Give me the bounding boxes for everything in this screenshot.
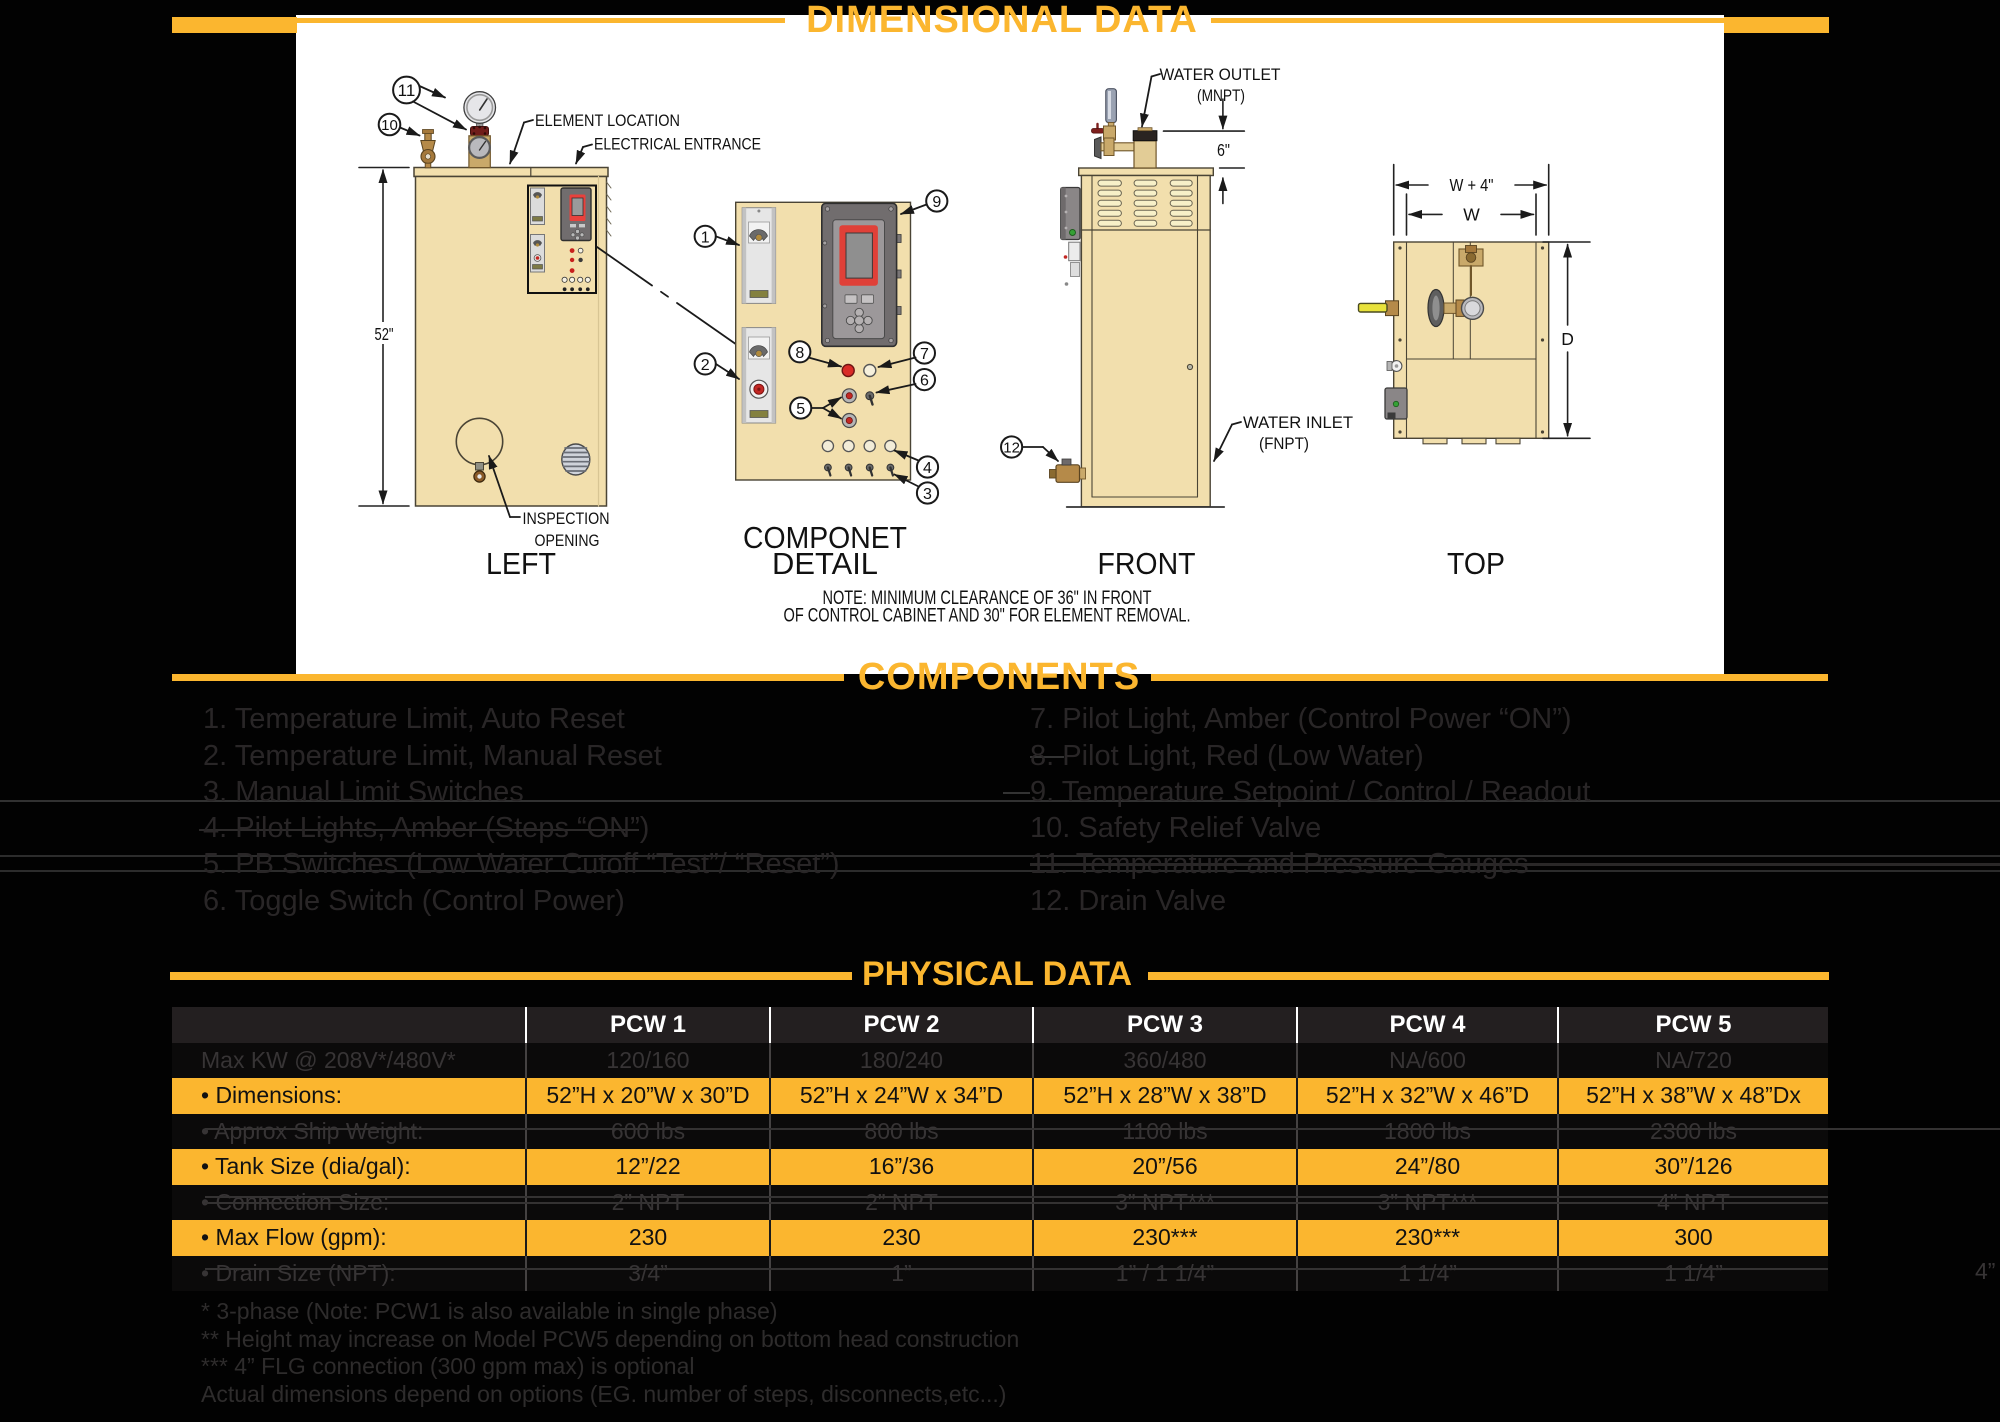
svg-text:1: 1 <box>701 229 710 246</box>
svg-text:(FNPT): (FNPT) <box>1259 435 1309 453</box>
svg-text:5: 5 <box>796 401 805 418</box>
svg-text:ELEMENT LOCATION: ELEMENT LOCATION <box>535 112 680 130</box>
svg-text:6": 6" <box>1217 140 1230 160</box>
svg-text:3: 3 <box>923 486 932 503</box>
svg-text:TOP: TOP <box>1447 546 1505 581</box>
svg-text:ELECTRICAL ENTRANCE: ELECTRICAL ENTRANCE <box>594 136 761 154</box>
svg-text:8: 8 <box>795 345 804 362</box>
svg-text:W + 4": W + 4" <box>1450 175 1494 195</box>
svg-text:52": 52" <box>375 324 394 344</box>
svg-text:DETAIL: DETAIL <box>772 546 878 581</box>
svg-text:7: 7 <box>920 346 929 363</box>
svg-text:W: W <box>1463 205 1480 225</box>
svg-text:LEFT: LEFT <box>486 546 556 581</box>
svg-text:11: 11 <box>398 81 416 100</box>
svg-text:6: 6 <box>920 373 929 390</box>
svg-text:OF CONTROL CABINET AND 30" FOR: OF CONTROL CABINET AND 30" FOR ELEMENT R… <box>784 606 1191 627</box>
svg-text:4: 4 <box>923 460 932 477</box>
svg-text:D: D <box>1561 329 1574 349</box>
svg-text:FRONT: FRONT <box>1098 546 1196 581</box>
svg-text:2: 2 <box>701 357 710 374</box>
svg-text:WATER INLET: WATER INLET <box>1243 414 1353 432</box>
svg-text:WATER OUTLET: WATER OUTLET <box>1160 66 1281 84</box>
svg-text:INSPECTION: INSPECTION <box>523 510 610 528</box>
svg-text:9: 9 <box>932 194 941 211</box>
svg-text:12: 12 <box>1003 440 1020 457</box>
svg-text:(MNPT): (MNPT) <box>1197 87 1245 105</box>
svg-text:10: 10 <box>381 117 398 134</box>
